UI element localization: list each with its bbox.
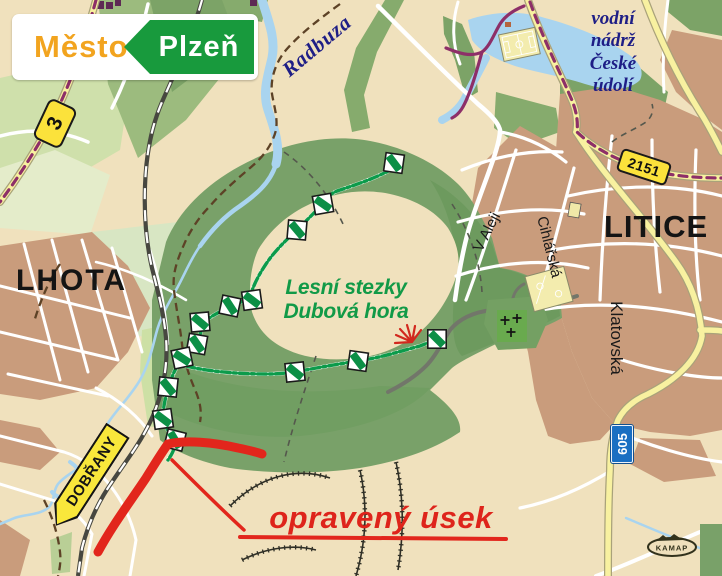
trail-marker-icon [219, 295, 241, 317]
trail-marker-icon [348, 351, 369, 372]
trail-marker-icon [312, 193, 333, 214]
trail-marker-icon [287, 220, 307, 240]
trail-marker-icon [242, 290, 263, 311]
trail-marker-icon [153, 409, 174, 430]
map-graphic [0, 0, 722, 576]
repaired-underline [240, 537, 506, 539]
city-logo-label: Město [34, 29, 129, 65]
trail-marker-icon [158, 377, 178, 397]
city-logo-name: Plzeň [139, 31, 240, 64]
trail-marker-icon [190, 312, 210, 332]
green-plot [700, 524, 722, 576]
map-canvas: Město Plzeň Radbuza vodní nádrž České úd… [0, 0, 722, 576]
city-logo-arrow-icon: Plzeň [124, 20, 254, 74]
city-logo: Město Plzeň [12, 14, 258, 80]
trail-marker-icon [428, 330, 446, 348]
road-shield-605: 605 [611, 425, 633, 463]
trail-marker-icon [285, 362, 305, 382]
building [568, 202, 581, 218]
trail-marker-icon [384, 153, 405, 174]
building [505, 22, 511, 27]
trail-marker-icon [171, 347, 193, 369]
